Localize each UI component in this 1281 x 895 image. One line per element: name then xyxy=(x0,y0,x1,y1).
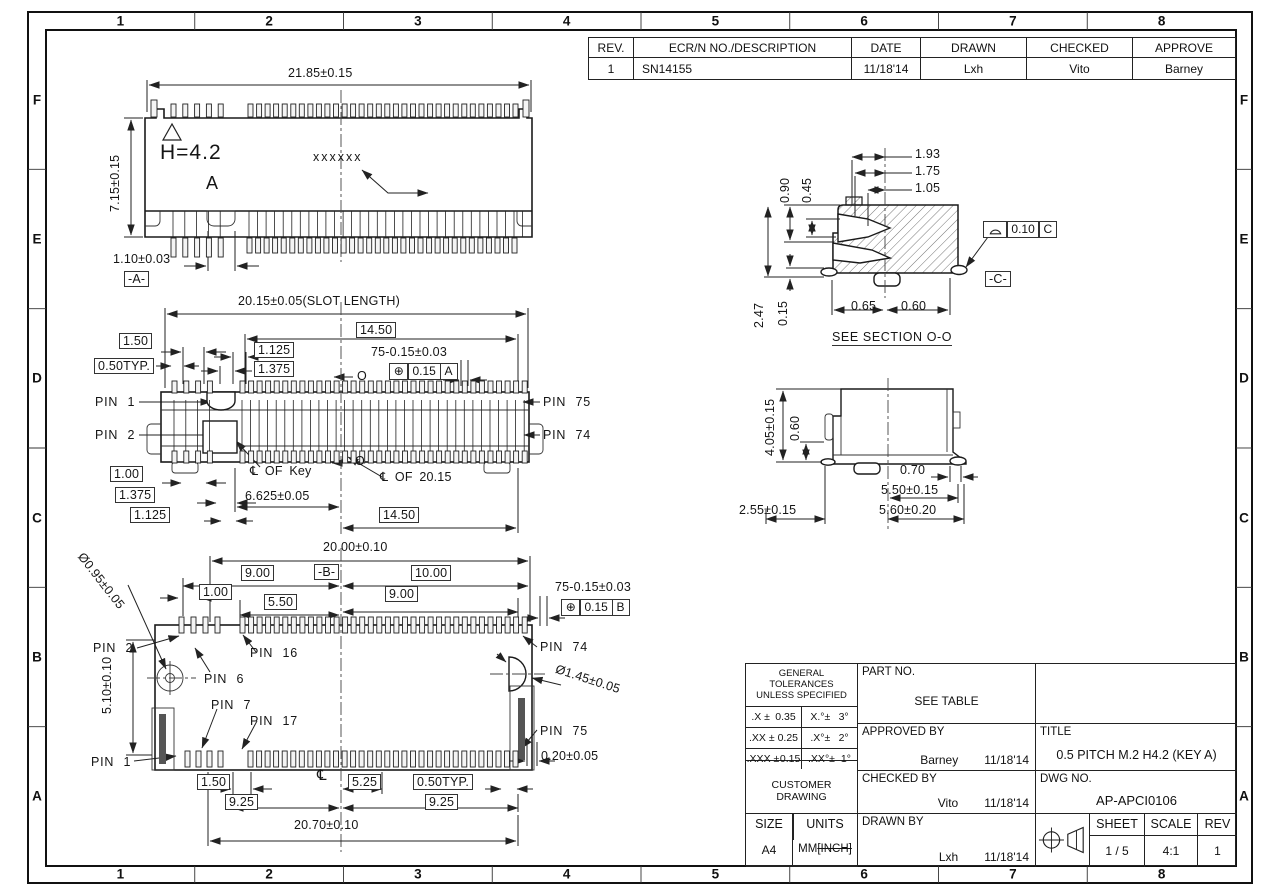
rev-cell: Vito xyxy=(1027,58,1133,79)
profile-of-surface-icon xyxy=(983,221,1008,238)
dim-020: 0.20±0.05 xyxy=(541,749,598,763)
blank-cell xyxy=(1036,664,1237,724)
dim-065: 0.65 xyxy=(851,299,876,313)
zone-label: 5 xyxy=(712,14,720,29)
dim-925-right: 9.25 xyxy=(425,794,458,810)
rev-cell: 11/18'14 xyxy=(852,58,921,79)
front-view xyxy=(124,80,532,271)
plan-view xyxy=(139,302,543,534)
dim-247: 2.47 xyxy=(752,303,766,328)
zone-label: 8 xyxy=(1158,867,1166,882)
zone-label: A xyxy=(32,789,42,804)
zone-label: A xyxy=(1239,789,1249,804)
size-cell: SIZE A4 xyxy=(746,814,793,867)
centerline-symbol: ℄ xyxy=(317,769,327,783)
rev-cell: Barney xyxy=(1133,58,1235,79)
pin2-label-bottom: PIN 2 xyxy=(93,641,133,655)
sheet-cell: SHEET 1 / 5 xyxy=(1090,814,1145,867)
units-inch-struck: [INCH] xyxy=(817,843,852,855)
zone-label: C xyxy=(1239,510,1249,525)
dim-1450-top: 14.50 xyxy=(356,322,396,338)
dim-1000: 10.00 xyxy=(411,565,451,581)
dim-925-left: 9.25 xyxy=(225,794,258,810)
third-angle-projection-icon xyxy=(1038,820,1088,860)
dim-175: 1.75 xyxy=(915,164,940,178)
title-block: GENERAL TOLERANCES UNLESS SPECIFIED .X ±… xyxy=(745,663,1236,866)
zone-label: F xyxy=(33,92,41,107)
position-tolerance-frame-b: ⊕ 0.15 B xyxy=(562,599,630,616)
pin16-label: PIN 16 xyxy=(250,646,298,660)
pin74-label-bottom: PIN 74 xyxy=(540,640,588,654)
side-view xyxy=(766,378,978,530)
drawn-by-cell: DRAWN BY Lxh11/18'14 xyxy=(858,814,1036,867)
pin2-label-plan: PIN 2 xyxy=(95,428,135,442)
pin1-label-plan: PIN 1 xyxy=(95,395,135,409)
profile-tolerance-frame: 0.10 C xyxy=(984,221,1057,238)
dim-pins-tol-plan: 75-0.15±0.03 xyxy=(371,345,447,359)
dim-1375-top: 1.375 xyxy=(254,361,294,377)
zone-label: 7 xyxy=(1009,867,1017,882)
dim-060-section: 0.60 xyxy=(901,299,926,313)
scale-cell: SCALE 4:1 xyxy=(1145,814,1198,867)
gt-title2: UNLESS SPECIFIED xyxy=(756,690,847,701)
zone-label: 2 xyxy=(265,867,273,882)
position-icon: ⊕ xyxy=(389,363,409,380)
zone-label: 5 xyxy=(712,867,720,882)
rev-cell: Lxh xyxy=(921,58,1027,79)
bottom-view xyxy=(126,548,565,852)
dim-525: 5.25 xyxy=(348,774,381,790)
zone-label: D xyxy=(1239,371,1249,386)
dim-tail-width: 1.10±0.03 xyxy=(113,252,170,266)
rev-header: APPROVE xyxy=(1133,38,1235,58)
dim-150-bottom: 1.50 xyxy=(197,774,230,790)
datum-c-box: -C- xyxy=(985,271,1011,287)
cl-of-2015-label: ℄ OF 20.15 xyxy=(380,470,452,484)
dim-900-left: 9.00 xyxy=(241,565,274,581)
pin75-label-bottom: PIN 75 xyxy=(540,724,588,738)
dim-1125-top: 1.125 xyxy=(254,342,294,358)
title-cell: TITLE 0.5 PITCH M.2 H4.2 (KEY A) xyxy=(1036,724,1237,771)
zone-label: 7 xyxy=(1009,14,1017,29)
rev-header: DRAWN xyxy=(921,38,1027,58)
datum-b-box: -B- xyxy=(314,564,339,580)
rev-header: REV. xyxy=(589,38,634,58)
marking-text: xxxxxx xyxy=(313,150,363,164)
drawing-number: AP-APCI0106 xyxy=(1036,793,1237,808)
dim-pins-tol-bottom: 75-0.15±0.03 xyxy=(555,580,631,594)
dim-slot-length: 20.15±0.05(SLOT LENGTH) xyxy=(238,294,400,308)
dim-045: 0.45 xyxy=(800,178,814,203)
pin7-label: PIN 7 xyxy=(211,698,251,712)
dim-100-plan: 1.00 xyxy=(110,466,143,482)
rev-cell: SN14155 xyxy=(634,58,852,79)
zone-label: 2 xyxy=(265,14,273,29)
position-tolerance-frame-a: ⊕ 0.15 A xyxy=(390,363,458,380)
zone-label: 4 xyxy=(563,14,571,29)
dim-2000: 20.00±0.10 xyxy=(323,540,387,554)
position-icon: ⊕ xyxy=(561,599,581,616)
dim-560: 5.60±0.20 xyxy=(879,503,936,517)
zone-label: 1 xyxy=(117,14,125,29)
part-no-cell: PART NO. SEE TABLE xyxy=(858,664,1036,724)
rev-header: DATE xyxy=(852,38,921,58)
dim-front-height: 7.15±0.15 xyxy=(108,155,122,212)
zone-label: E xyxy=(1239,231,1248,246)
dim-1450-bot: 14.50 xyxy=(379,507,419,523)
zone-label: 4 xyxy=(563,867,571,882)
drawing-title: 0.5 PITCH M.2 H4.2 (KEY A) xyxy=(1036,748,1237,762)
checked-by-cell: CHECKED BY Vito11/18'14 xyxy=(858,771,1036,814)
dim-405: 4.05±0.15 xyxy=(763,399,777,456)
zone-label: 6 xyxy=(860,14,868,29)
dim-2070: 20.70±0.10 xyxy=(294,818,358,832)
dim-550-side: 5.50±0.15 xyxy=(881,483,938,497)
dim-193: 1.93 xyxy=(915,147,940,161)
zone-label: 3 xyxy=(414,14,422,29)
dim-6625: 6.625±0.05 xyxy=(245,489,309,503)
pin74-label-plan: PIN 74 xyxy=(543,428,591,442)
zone-label: B xyxy=(1239,649,1249,664)
zone-label: 3 xyxy=(414,867,422,882)
section-caption: SEE SECTION O-O xyxy=(832,330,952,346)
zone-label: D xyxy=(32,371,42,386)
dim-1125-bot: 1.125 xyxy=(130,507,170,523)
dim-front-width: 21.85±0.15 xyxy=(288,66,352,80)
zone-label: B xyxy=(32,649,42,664)
dwg-no-cell: DWG NO. AP-APCI0106 xyxy=(1036,771,1237,814)
gt-title: GENERAL TOLERANCES xyxy=(769,668,833,690)
customer-drawing-cell: CUSTOMER DRAWING xyxy=(746,761,858,814)
dim-550: 5.50 xyxy=(264,594,297,610)
zone-label: 6 xyxy=(860,867,868,882)
dim-900-right: 9.00 xyxy=(385,586,418,602)
pin75-label-plan: PIN 75 xyxy=(543,395,591,409)
units-cell: UNITS MM[INCH] xyxy=(793,814,858,867)
zone-label: 1 xyxy=(117,867,125,882)
rev-cell: 1 xyxy=(589,58,634,79)
datum-target-letter: A xyxy=(206,176,218,190)
section-arrow-o-bottom: O xyxy=(355,454,365,468)
pin6-label: PIN 6 xyxy=(204,672,244,686)
section-view xyxy=(764,148,988,315)
dim-1375-bot: 1.375 xyxy=(115,487,155,503)
dim-090: 0.90 xyxy=(778,178,792,203)
dim-070: 0.70 xyxy=(900,463,925,477)
zone-label: F xyxy=(1240,92,1248,107)
approved-by-cell: APPROVED BY Barney11/18'14 xyxy=(858,724,1036,771)
dim-150: 1.50 xyxy=(119,333,152,349)
general-tolerances: GENERAL TOLERANCES UNLESS SPECIFIED .X ±… xyxy=(746,664,858,761)
datum-a-box: -A- xyxy=(124,271,149,287)
section-arrow-o-top: O xyxy=(357,369,367,383)
dim-060-side: 0.60 xyxy=(788,416,802,441)
drawing-sheet: .dim{stroke:#222;stroke-width:1;fill:non… xyxy=(0,0,1281,895)
pin17-label: PIN 17 xyxy=(250,714,298,728)
rev-header: CHECKED xyxy=(1027,38,1133,58)
cl-of-key-label: ℄ OF Key xyxy=(250,464,311,478)
height-callout: H=4.2 xyxy=(160,146,222,160)
rev-header: ECR/N NO./DESCRIPTION xyxy=(634,38,852,58)
pin1-label-bottom: PIN 1 xyxy=(91,755,131,769)
zone-label: C xyxy=(32,510,42,525)
dim-015: 0.15 xyxy=(776,301,790,326)
dim-105: 1.05 xyxy=(915,181,940,195)
dim-510: 5.10±0.10 xyxy=(100,657,114,714)
dim-050typ-bottom: 0.50TYP. xyxy=(413,774,473,790)
revision-table: REV. ECR/N NO./DESCRIPTION DATE DRAWN CH… xyxy=(588,37,1236,80)
dim-100-bottom: 1.00 xyxy=(199,584,232,600)
rev-cell-block: REV 1 xyxy=(1198,814,1237,867)
dim-050typ-plan: 0.50TYP. xyxy=(94,358,154,374)
dim-255: 2.55±0.15 xyxy=(739,503,796,517)
projection-cell xyxy=(1036,814,1090,867)
zone-label: 8 xyxy=(1158,14,1166,29)
zone-label: E xyxy=(32,231,41,246)
